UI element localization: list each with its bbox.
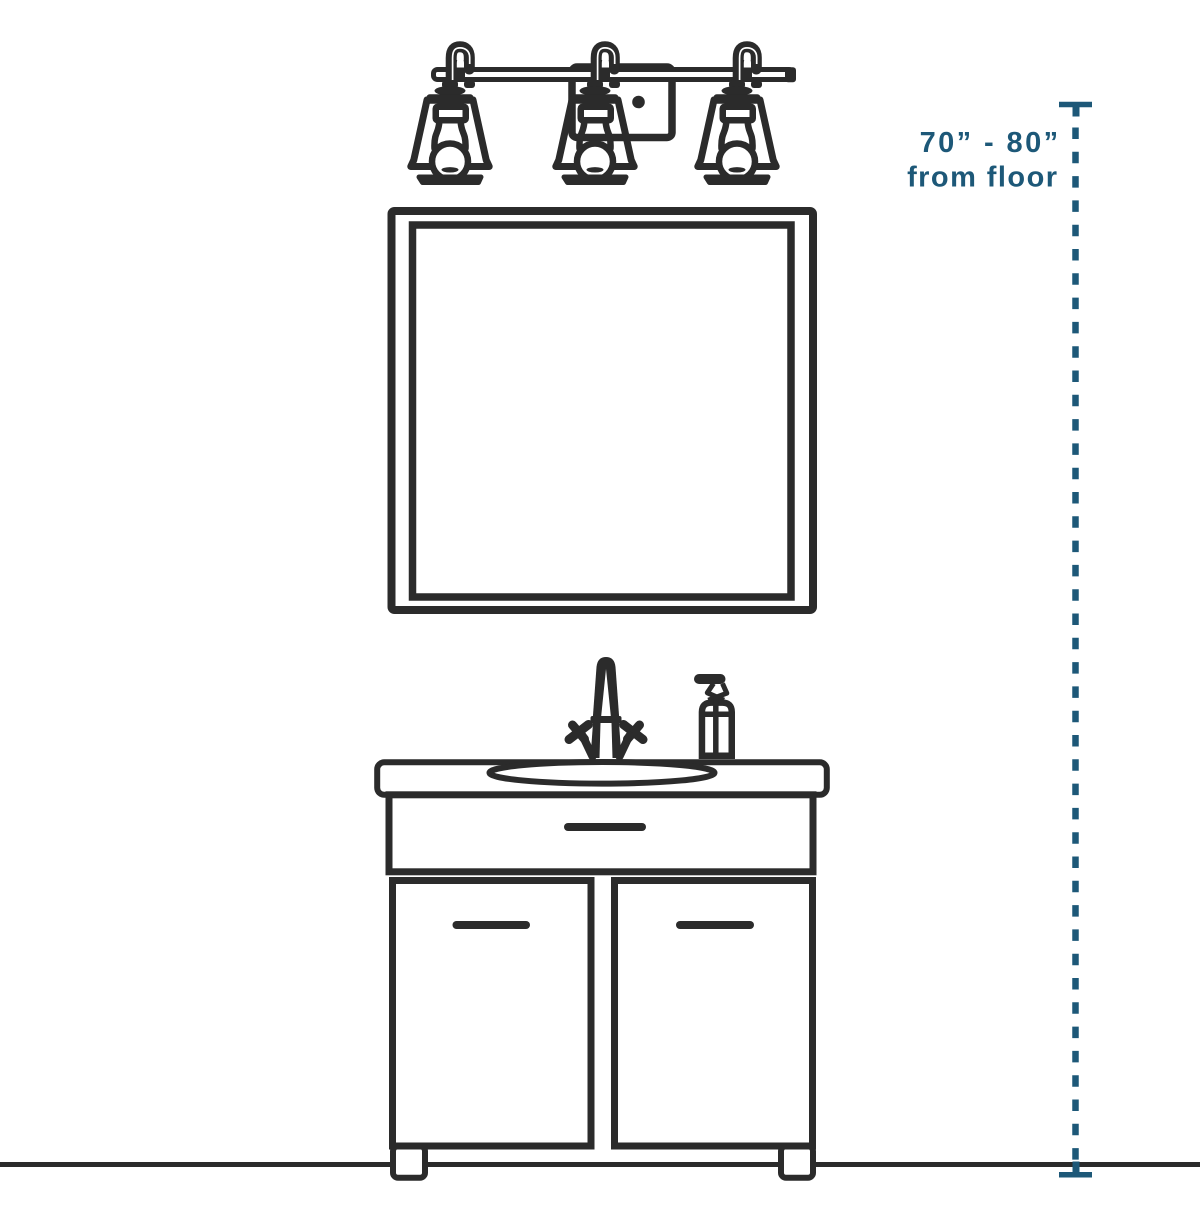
svg-text:from floor: from floor [907, 161, 1058, 193]
svg-text:70” - 80”: 70” - 80” [920, 127, 1061, 159]
